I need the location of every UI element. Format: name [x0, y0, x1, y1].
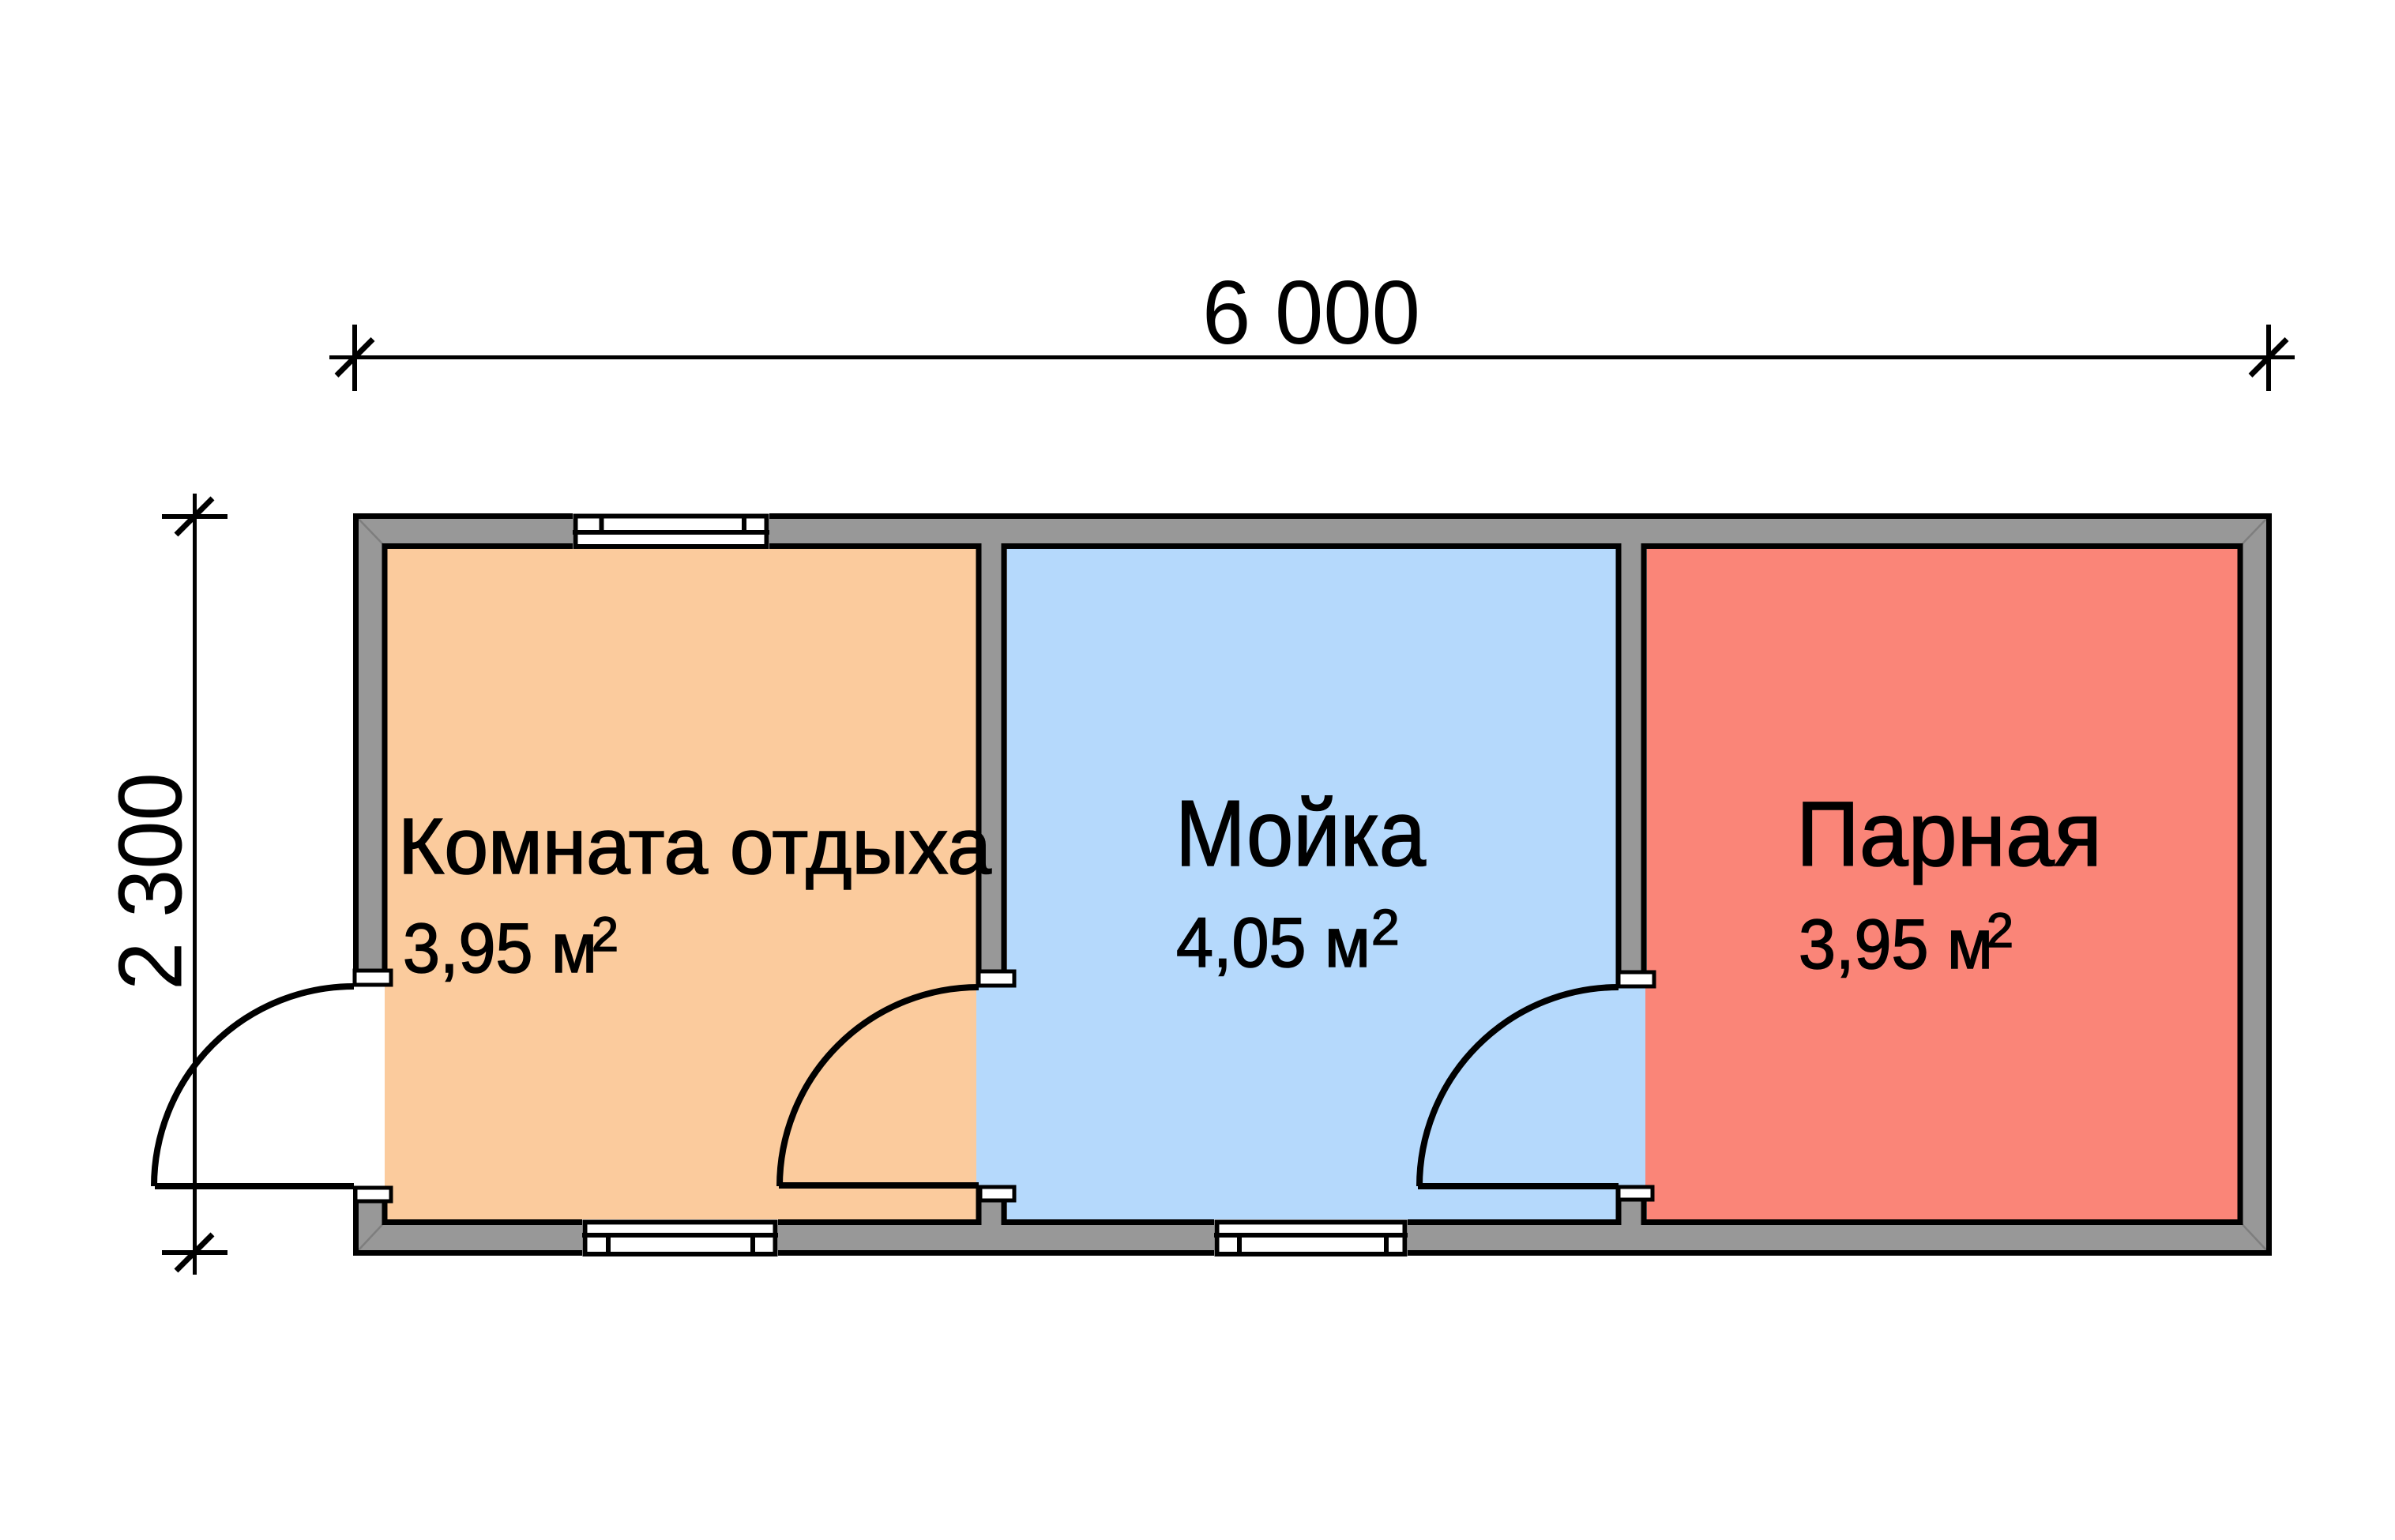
svg-text:3,95 м: 3,95 м [403, 908, 597, 987]
svg-text:2: 2 [592, 907, 618, 961]
svg-text:2 300: 2 300 [101, 772, 201, 990]
svg-text:Парная: Парная [1796, 783, 2102, 885]
svg-text:4,05 м: 4,05 м [1176, 903, 1370, 982]
svg-text:Мойка: Мойка [1175, 781, 1427, 886]
svg-text:2: 2 [1371, 899, 1400, 956]
svg-text:3,95 м: 3,95 м [1799, 904, 1993, 983]
svg-text:6 000: 6 000 [1202, 263, 1420, 363]
svg-text:Комната отдыха: Комната отдыха [398, 802, 991, 891]
svg-text:2: 2 [1987, 903, 2013, 957]
